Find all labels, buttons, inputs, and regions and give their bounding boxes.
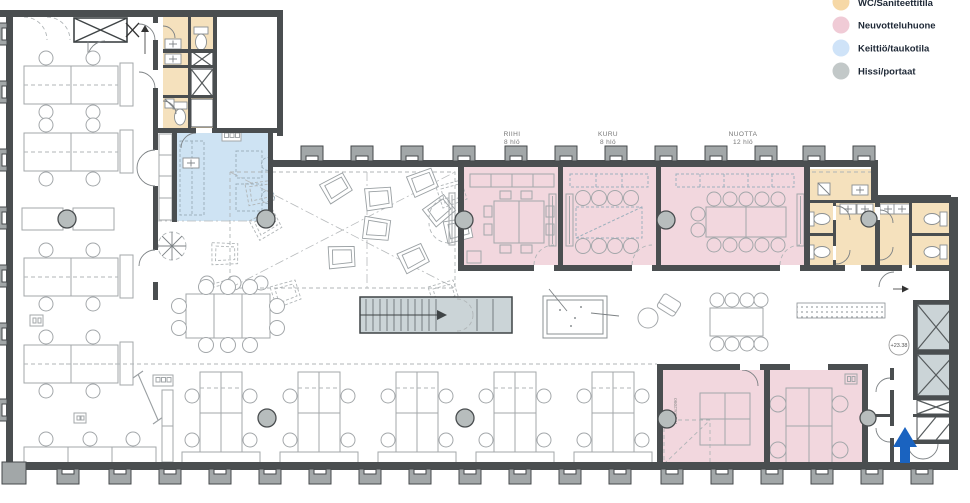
desk-cluster (24, 243, 133, 311)
duct-shaft-box (74, 18, 127, 42)
desk-pod (378, 372, 456, 463)
toilet-icon (807, 245, 830, 259)
desk-cluster (24, 118, 133, 186)
printer-station (153, 375, 173, 386)
bottom-desk-row (24, 432, 156, 464)
room-capacity-kuru: 8 hlö (600, 139, 616, 146)
desk-pod (182, 372, 260, 463)
legend-item-wc: WC/Saniteettitila (833, 0, 934, 11)
room-name-riihi: RIIHI (504, 131, 521, 138)
whiteboard (162, 390, 173, 462)
legend-item-meeting: Neuvotteluhuone (833, 17, 936, 34)
legend-label-kitchen: Keittiö/taukotila (858, 44, 930, 55)
shaft-large (191, 69, 213, 97)
north-marker (141, 25, 149, 54)
toilet-icon (194, 27, 208, 50)
sideboard (73, 208, 114, 230)
toilet-icon (924, 212, 947, 226)
billiard-table (543, 289, 619, 338)
section-x-mark (126, 23, 139, 37)
desk-pod (574, 372, 652, 463)
floor-plan-drawing: +23.38 (0, 0, 970, 503)
floor-plan-page: +23.38 (0, 0, 970, 503)
entrance-arrow-icon (893, 427, 917, 463)
conference-table-west (172, 280, 285, 353)
desk-cluster (24, 51, 133, 119)
kitchen-sink (183, 158, 199, 168)
toilet-icon (173, 102, 187, 125)
electric-box (74, 413, 86, 423)
room-capacity-riihi: 8 hlö (504, 139, 520, 146)
round-rug (158, 232, 186, 260)
shaft-small (191, 51, 213, 67)
room-name-kuru: KURU (598, 131, 618, 138)
legend-label-wc: WC/Saniteettitila (858, 0, 934, 9)
legend-label-meeting: Neuvotteluhuone (858, 21, 936, 32)
legend-swatch-lift (833, 63, 850, 80)
storage-mat (797, 303, 885, 318)
toilet-icon (924, 245, 947, 259)
room-labels: RIIHI 8 hlö KURU 8 hlö NUOTTA 12 hlö (504, 131, 758, 146)
room-name-nuotta: NUOTTA (729, 131, 758, 138)
kitchen-zone (177, 132, 268, 221)
svg-text:+23.38: +23.38 (891, 343, 908, 349)
legend-swatch-meeting (833, 17, 850, 34)
legend-label-lift: Hissi/portaat (858, 67, 916, 78)
desk-pod (280, 372, 358, 463)
legend: WC/Saniteettitila Neuvotteluhuone Keitti… (833, 0, 936, 80)
electric-box (30, 315, 43, 326)
corridor-doors (137, 24, 155, 266)
conference-table-east (710, 293, 768, 351)
legend-item-kitchen: Keittiö/taukotila (833, 40, 930, 57)
elevation-marker: +23.38 (889, 335, 909, 355)
round-table-set (638, 293, 682, 328)
sideboard (22, 208, 63, 230)
legend-item-lift: Hissi/portaat (833, 63, 917, 80)
room-capacity-nuotta: 12 hlö (733, 139, 753, 146)
corridor-arrow (893, 286, 909, 293)
legend-swatch-wc (833, 0, 850, 11)
toilet-icon (807, 212, 830, 226)
staircase (360, 297, 512, 333)
open-office-left (22, 17, 156, 464)
locker-column (159, 134, 172, 220)
desk-pod (476, 372, 554, 463)
middle-band: +23.38 (172, 280, 910, 356)
legend-swatch-kitchen (833, 40, 850, 57)
